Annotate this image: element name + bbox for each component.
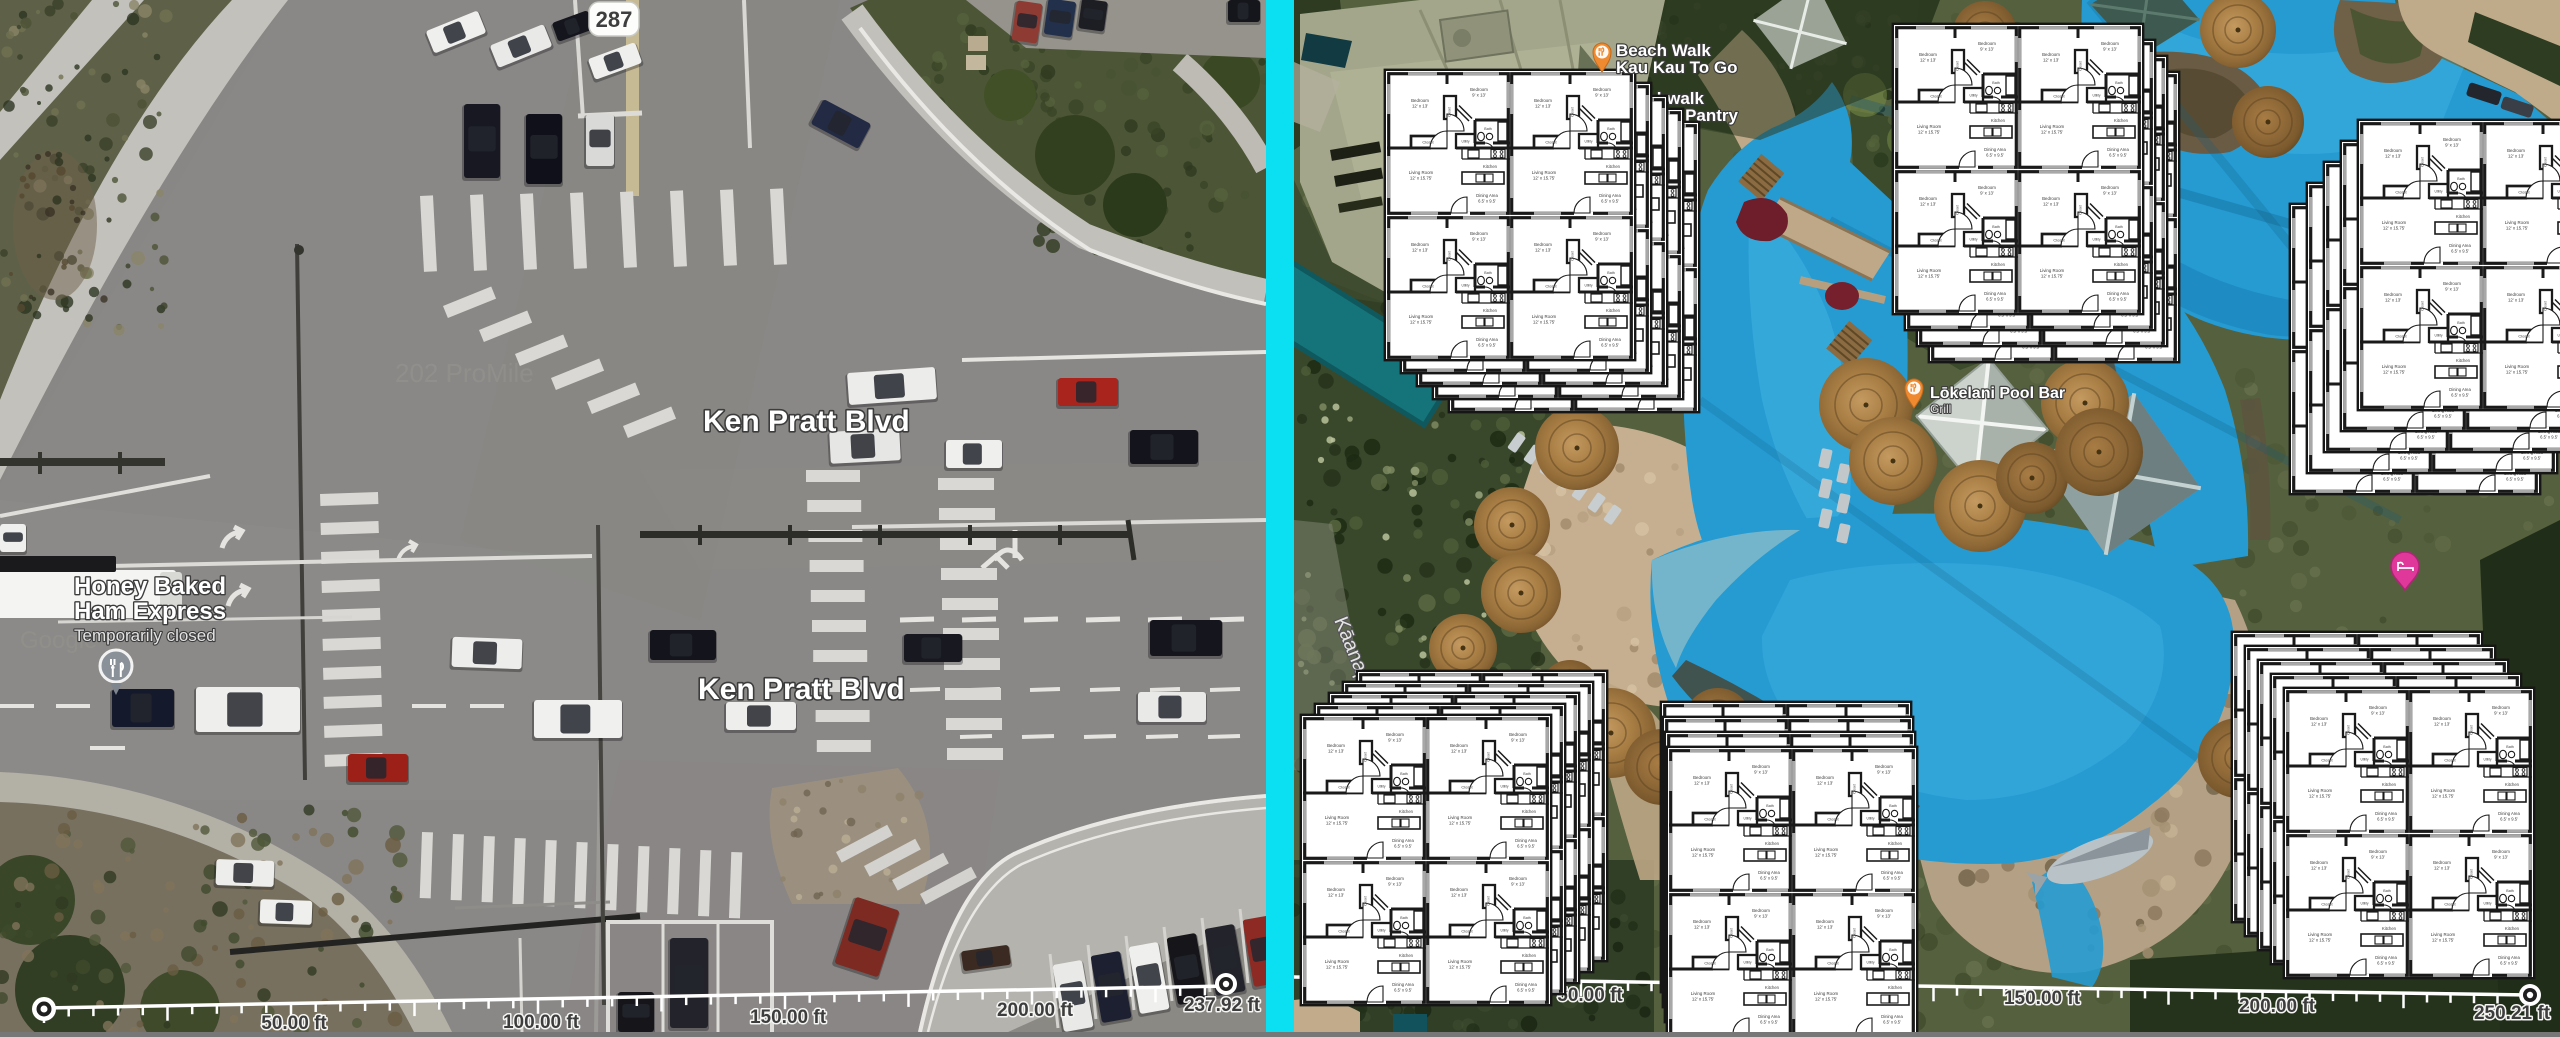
svg-text:150.00 ft: 150.00 ft xyxy=(2004,988,2081,1009)
svg-text:Honey Baked: Honey Baked xyxy=(74,573,226,600)
svg-text:Ken Pratt Blvd: Ken Pratt Blvd xyxy=(698,673,905,706)
svg-text:200.00 ft: 200.00 ft xyxy=(997,1000,1074,1021)
svg-text:Ken Pratt Blvd: Ken Pratt Blvd xyxy=(703,405,910,438)
svg-text:50.00 ft: 50.00 ft xyxy=(1557,985,1623,1006)
svg-text:50.00 ft: 50.00 ft xyxy=(261,1013,327,1032)
svg-text:250.21 ft: 250.21 ft xyxy=(2474,1003,2551,1024)
svg-text:202 ProMile: 202 ProMile xyxy=(395,358,534,388)
svg-text:150.00 ft: 150.00 ft xyxy=(750,1007,827,1028)
svg-text:Ham Express: Ham Express xyxy=(74,598,226,625)
svg-text:Lōkelani Pool Bar: Lōkelani Pool Bar xyxy=(1930,385,2065,402)
svg-text:100.00 ft: 100.00 ft xyxy=(503,1012,580,1032)
svg-text:200.00 ft: 200.00 ft xyxy=(2239,996,2316,1017)
svg-text:Grill: Grill xyxy=(1930,402,1951,416)
svg-text:237.92 ft: 237.92 ft xyxy=(1184,995,1261,1016)
svg-text:Kau Kau To Go: Kau Kau To Go xyxy=(1616,58,1738,77)
svg-text:287: 287 xyxy=(596,7,633,32)
svg-text:Temporarily closed: Temporarily closed xyxy=(74,626,216,645)
